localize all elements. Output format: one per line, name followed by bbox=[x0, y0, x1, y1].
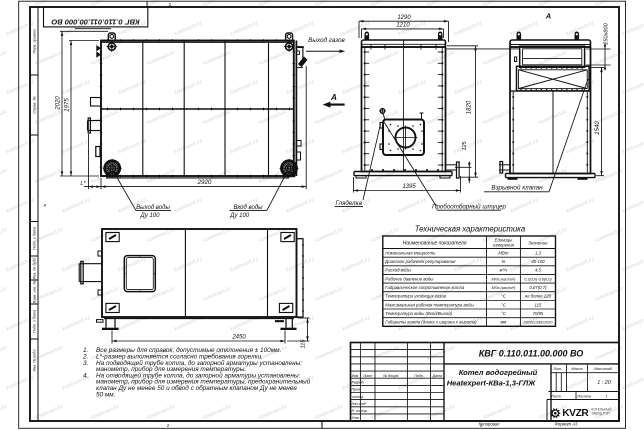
svg-text:Подп.: Подп. bbox=[414, 374, 424, 378]
svg-text:не более 220: не более 220 bbox=[525, 294, 552, 299]
svg-text:50 мм.: 50 мм. bbox=[96, 391, 115, 398]
svg-text:Номинальная мощность: Номинальная мощность bbox=[385, 250, 436, 255]
svg-text:1290: 1290 bbox=[397, 15, 411, 21]
svg-text:Взам. инв. №: Взам. инв. № bbox=[33, 281, 37, 304]
svg-text:Подп. и дата: Подп. и дата bbox=[33, 310, 37, 333]
svg-text:1395: 1395 bbox=[402, 184, 416, 190]
svg-text:1975: 1975 bbox=[65, 98, 71, 112]
svg-text:Н. контр.: Н. контр. bbox=[352, 409, 368, 413]
svg-text:Температура уходящих газов: Температура уходящих газов bbox=[385, 294, 446, 299]
svg-text:мм: мм bbox=[500, 320, 506, 325]
svg-text:%: % bbox=[502, 259, 506, 264]
svg-text:Рабочее давление воды: Рабочее давление воды bbox=[385, 276, 434, 281]
svg-text:Дата: Дата bbox=[432, 374, 442, 378]
svg-text:Справ. №: Справ. № bbox=[33, 96, 37, 113]
svg-text:МПа (кгс/см²): МПа (кгс/см²) bbox=[491, 286, 516, 290]
svg-text:Лист: Лист bbox=[362, 374, 372, 378]
svg-text:1540: 1540 bbox=[595, 121, 601, 135]
svg-text:250х800: 250х800 bbox=[604, 22, 610, 45]
svg-text:Температура воды (Вход/Выход): Температура воды (Вход/Выход) bbox=[385, 311, 452, 316]
svg-text:Инв. № подл.: Инв. № подл. bbox=[33, 349, 37, 372]
svg-text:2920х1395х2020: 2920х1395х2020 bbox=[522, 321, 553, 325]
svg-text:Ду 100: Ду 100 bbox=[229, 213, 250, 219]
svg-text:Копировал: Копировал bbox=[479, 422, 500, 427]
svg-text:Формат А3: Формат А3 bbox=[555, 422, 579, 427]
svg-text:0,3(3,0)-0,6(6,0): 0,3(3,0)-0,6(6,0) bbox=[524, 277, 552, 281]
svg-text:КВГ 0.110.011.00.000 ВО: КВГ 0.110.011.00.000 ВО bbox=[479, 349, 584, 359]
svg-text:клапан Ду не менее 50 и обвод: клапан Ду не менее 50 и обвод с обратным… bbox=[96, 384, 297, 392]
svg-text:2450: 2450 bbox=[231, 335, 246, 341]
svg-text:МПа (кгс/см²): МПа (кгс/см²) bbox=[491, 277, 516, 281]
svg-text:L*: L* bbox=[80, 181, 86, 187]
svg-text:Утв.: Утв. bbox=[352, 416, 360, 420]
svg-text:Подп. и дата: Подп. и дата bbox=[33, 227, 37, 250]
svg-text:Нач.отд: Нач.отд bbox=[352, 402, 366, 406]
svg-text:4.: 4. bbox=[83, 372, 88, 379]
svg-text:Взрывной клапан: Взрывной клапан bbox=[491, 184, 543, 192]
svg-text:Изм.: Изм. bbox=[352, 374, 360, 378]
svg-text:3.: 3. bbox=[83, 360, 88, 367]
svg-text:№ докум.: № докум. bbox=[383, 374, 399, 378]
svg-text:1210: 1210 bbox=[396, 23, 410, 29]
svg-text:115: 115 bbox=[301, 339, 307, 349]
svg-text:1,3: 1,3 bbox=[535, 250, 542, 255]
svg-text:A: A bbox=[330, 93, 337, 102]
svg-text:Диапазон рабочего регулировани: Диапазон рабочего регулирования bbox=[384, 259, 456, 264]
svg-text:2020: 2020 bbox=[56, 96, 62, 111]
svg-text:1: 1 bbox=[605, 394, 607, 398]
svg-text:Перв. примен.: Перв. примен. bbox=[33, 28, 37, 53]
svg-text:4,5: 4,5 bbox=[535, 268, 542, 273]
svg-text:Наименование показателя: Наименование показателя bbox=[403, 240, 467, 246]
svg-text:Выход газов: Выход газов bbox=[308, 36, 345, 44]
svg-text:Ду 100: Ду 100 bbox=[140, 213, 161, 219]
svg-text:МВт: МВт bbox=[498, 250, 508, 255]
svg-text:Листов: Листов bbox=[576, 394, 591, 398]
svg-text:контр.: контр. bbox=[353, 395, 365, 399]
svg-text:40-100: 40-100 bbox=[531, 259, 545, 264]
svg-text:Разраб.: Разраб. bbox=[352, 381, 365, 385]
svg-text:КВГ 0.110.011.00.000 ВО: КВГ 0.110.011.00.000 ВО bbox=[51, 18, 139, 27]
svg-text:2920: 2920 bbox=[197, 179, 212, 186]
svg-text:Лист: Лист bbox=[550, 394, 561, 398]
svg-text:Масштаб: Масштаб bbox=[594, 367, 613, 371]
svg-text:1820: 1820 bbox=[467, 100, 473, 114]
svg-text:115: 115 bbox=[535, 302, 542, 307]
svg-text:м³/ч: м³/ч bbox=[500, 268, 509, 273]
svg-text:Значение: Значение bbox=[528, 240, 548, 245]
svg-text:Пров.: Пров. bbox=[352, 388, 361, 392]
svg-text:Техническая характеристика: Техническая характеристика bbox=[415, 225, 526, 234]
svg-text:Гляделка: Гляделка bbox=[335, 200, 362, 207]
svg-text:Гидравлическое сопротивление к: Гидравлическое сопротивление котла bbox=[385, 285, 465, 290]
svg-text:Масса: Масса bbox=[571, 367, 582, 371]
svg-text:Heatexpert-КВа-1,3-ГЛЖ: Heatexpert-КВа-1,3-ГЛЖ bbox=[447, 379, 537, 388]
svg-text:Максимальная рабочая температу: Максимальная рабочая температура воды bbox=[385, 302, 474, 307]
svg-text:70/95: 70/95 bbox=[533, 311, 544, 316]
svg-text:ЗАВОД РЭП: ЗАВОД РЭП bbox=[592, 412, 611, 416]
svg-text:1 : 20: 1 : 20 bbox=[597, 380, 611, 386]
svg-text:A: A bbox=[43, 203, 47, 208]
svg-text:Габариты котла (длина х ширина: Габариты котла (длина х ширина х высота) bbox=[385, 320, 477, 325]
svg-text:измерения: измерения bbox=[493, 243, 515, 248]
svg-text:125: 125 bbox=[462, 140, 468, 150]
svg-text:Котел водогрейный: Котел водогрейный bbox=[459, 368, 538, 377]
svg-text:Пробоотборный штуцер: Пробоотборный штуцер bbox=[432, 204, 507, 211]
svg-text:Инв. № дубл.: Инв. № дубл. bbox=[33, 257, 37, 280]
svg-text:Лит.: Лит. bbox=[552, 367, 562, 371]
svg-text:KVZR: KVZR bbox=[562, 408, 589, 419]
svg-text:0,07(0,7): 0,07(0,7) bbox=[529, 285, 547, 290]
svg-text:A: A bbox=[545, 12, 551, 21]
svg-text:Расход воды: Расход воды bbox=[385, 268, 411, 273]
